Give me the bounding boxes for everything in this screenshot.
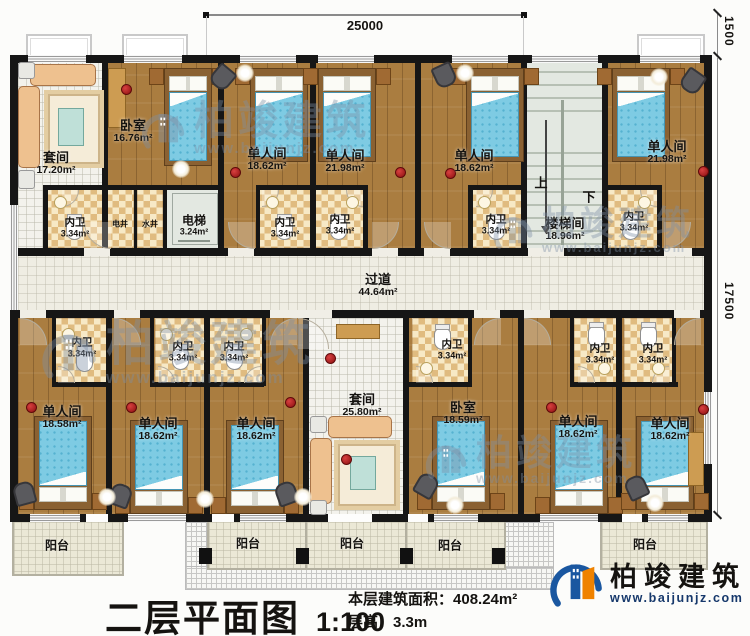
- window: [240, 55, 296, 63]
- elevator-label: 电梯3.24m²: [180, 214, 209, 237]
- stairs-up-label: 上: [534, 173, 547, 192]
- room-label-bedroom-2: 卧室18.59m²: [443, 401, 482, 427]
- washbasin: [240, 328, 253, 341]
- elevator-door: [178, 240, 210, 242]
- bed-pillows: [231, 491, 279, 506]
- room-label-single-1: 单人间18.62m²: [247, 147, 286, 173]
- balcony-label: 阳台: [340, 537, 364, 550]
- exterior-steps: [502, 522, 554, 568]
- sofa: [328, 416, 392, 438]
- floor-plan-canvas: 25000 1500 17500: [0, 0, 750, 636]
- wall: [52, 318, 56, 386]
- window: [540, 514, 598, 522]
- company-logo: 柏竣建筑 www.baijunjz.com: [548, 556, 746, 612]
- room-label-suite-1: 套间17.20m²: [36, 151, 75, 177]
- window: [318, 55, 374, 63]
- balcony-door: [622, 514, 642, 522]
- wall: [518, 318, 524, 514]
- window: [128, 514, 186, 522]
- room-label-single-9: 单人间18.62m²: [650, 417, 689, 443]
- washbasin: [478, 196, 491, 209]
- window: [704, 392, 712, 464]
- drawing-title: 二层平面图: [105, 588, 300, 636]
- bed: [432, 416, 490, 510]
- bed-pillows: [555, 491, 603, 506]
- room-label-stairwell: 楼梯间18.96m²: [545, 217, 584, 243]
- door-opening: [228, 248, 254, 256]
- stool: [26, 402, 37, 413]
- stool: [546, 402, 557, 413]
- stool: [698, 404, 709, 415]
- stool: [126, 402, 137, 413]
- dimension-line-top: [206, 14, 524, 16]
- balcony-door: [86, 514, 108, 522]
- bath-label: 内卫3.34m²: [639, 343, 668, 364]
- window: [240, 514, 286, 522]
- door-opening: [528, 248, 564, 256]
- column: [296, 548, 309, 564]
- stool: [325, 353, 336, 364]
- washbasin: [54, 196, 67, 209]
- washbasin: [420, 362, 433, 375]
- bed-pillows: [471, 76, 519, 91]
- washbasin: [638, 196, 651, 209]
- column: [492, 548, 505, 564]
- door-opening: [524, 310, 550, 318]
- room-label-single-7: 单人间18.62m²: [236, 417, 275, 443]
- ceiling-light: [98, 488, 116, 506]
- window: [30, 514, 80, 522]
- room-label-single-2: 单人间21.98m²: [325, 149, 364, 175]
- stool: [285, 397, 296, 408]
- company-logo-icon: [548, 556, 604, 612]
- washbasin: [266, 196, 279, 209]
- bed: [164, 68, 212, 166]
- bed-pillows: [323, 76, 371, 91]
- balcony-door: [328, 514, 372, 522]
- shaft-water-label: 水井: [142, 219, 158, 230]
- window: [532, 55, 598, 63]
- ceiling-light: [446, 496, 464, 514]
- room-label-single-6: 单人间18.62m²: [138, 417, 177, 443]
- sofa: [310, 438, 332, 504]
- ceiling-light: [172, 160, 190, 178]
- room-label-single-5: 单人间18.58m²: [42, 405, 81, 431]
- room-label-single-8: 单人间18.62m²: [558, 415, 597, 441]
- bath-label: 内卫3.34m²: [326, 214, 355, 235]
- ceiling-light: [196, 490, 214, 508]
- bed-mattress: [169, 92, 207, 161]
- bed-pillows: [255, 76, 303, 91]
- dim-extension: [206, 16, 207, 56]
- bath-label: 内卫3.34m²: [220, 341, 249, 362]
- ceiling-light: [294, 488, 312, 506]
- dim-offset-label: 1500: [722, 16, 736, 47]
- bath-label: 内卫3.34m²: [271, 217, 300, 238]
- bath-label: 内卫3.34m²: [482, 214, 511, 235]
- wall: [262, 318, 266, 386]
- door-opening: [270, 310, 296, 318]
- wall: [415, 62, 421, 248]
- window: [434, 514, 478, 522]
- column: [199, 548, 212, 564]
- side-table: [18, 62, 35, 79]
- corridor-label: 过道44.64m²: [358, 273, 397, 299]
- shaft-electric-label: 电井: [112, 219, 128, 230]
- room-label-single-4: 单人间21.98m²: [647, 140, 686, 166]
- bath-label: 内卫3.34m²: [169, 341, 198, 362]
- door-opening: [296, 310, 332, 318]
- wall: [570, 318, 574, 386]
- wall: [363, 185, 368, 248]
- side-table: [310, 416, 327, 433]
- dim-extension: [523, 16, 524, 56]
- stool: [121, 84, 132, 95]
- stool: [395, 167, 406, 178]
- washbasin: [160, 328, 173, 341]
- dim-tick: [521, 12, 527, 18]
- balcony-door: [212, 514, 234, 522]
- ceiling-light: [236, 64, 254, 82]
- ceiling-light: [650, 68, 668, 86]
- company-name: 柏竣建筑: [610, 563, 746, 591]
- window: [648, 514, 688, 522]
- dimension-line-right-depth: [717, 57, 718, 515]
- coffee-table: [58, 108, 84, 146]
- balcony-label: 阳台: [633, 538, 657, 551]
- wall: [256, 185, 260, 248]
- room-label-suite-2: 套间25.80m²: [342, 393, 381, 419]
- side-table: [18, 170, 35, 189]
- balcony-label: 阳台: [45, 539, 69, 552]
- door-opening: [372, 248, 398, 256]
- desk: [336, 324, 380, 339]
- company-website: www.baijunjz.com: [610, 591, 746, 605]
- window: [640, 55, 700, 63]
- floor-height-label: 层高：: [348, 614, 393, 631]
- door-opening: [20, 310, 46, 318]
- wall: [403, 318, 409, 514]
- wall: [163, 188, 167, 248]
- wall: [468, 318, 472, 386]
- wall: [134, 188, 137, 248]
- drawing-info: 本层建筑面积：408.24m² 层高：3.3m: [348, 589, 517, 634]
- window: [28, 55, 86, 63]
- wall: [672, 318, 676, 386]
- wall: [468, 185, 473, 248]
- wall: [106, 318, 112, 514]
- door-opening: [474, 310, 500, 318]
- door-opening: [674, 310, 700, 318]
- ceiling-light: [456, 64, 474, 82]
- bath-label: 内卫3.34m²: [68, 337, 97, 358]
- wall: [602, 57, 608, 248]
- dim-depth-label: 17500: [722, 282, 736, 320]
- wall: [657, 185, 662, 248]
- bed-pillows: [135, 491, 183, 506]
- window: [124, 55, 182, 63]
- dimension-line-right-offset: [717, 13, 718, 57]
- ceiling-light: [646, 494, 664, 512]
- bath-label: 内卫3.34m²: [61, 217, 90, 238]
- door-opening: [424, 248, 450, 256]
- stool: [230, 167, 241, 178]
- floor-area-label: 本层建筑面积：: [348, 591, 453, 608]
- balcony-label: 阳台: [236, 537, 260, 550]
- floor-height-value: 3.3m: [393, 614, 427, 631]
- stairs-down-label: 下: [582, 187, 595, 206]
- wall: [18, 248, 704, 256]
- bed-mattress: [437, 421, 485, 486]
- coffee-table: [350, 456, 376, 490]
- wall: [310, 62, 316, 248]
- side-table: [310, 500, 327, 515]
- wall: [204, 318, 210, 514]
- balcony-door: [408, 514, 428, 522]
- door-opening: [84, 248, 110, 256]
- stool: [341, 454, 352, 465]
- dim-width-label: 25000: [320, 18, 410, 33]
- floor-area-value: 408.24m²: [453, 591, 517, 608]
- window: [10, 205, 18, 310]
- balcony-label: 阳台: [438, 539, 462, 552]
- door-opening: [114, 310, 140, 318]
- bath-label: 内卫3.34m²: [438, 339, 467, 360]
- column: [400, 548, 413, 564]
- room-label-single-3: 单人间18.62m²: [454, 149, 493, 175]
- room-label-bedroom-1: 卧室16.76m²: [113, 119, 152, 145]
- wall: [616, 318, 622, 514]
- bed-pillows: [169, 76, 207, 91]
- desk: [688, 432, 704, 486]
- bath-label: 内卫3.34m²: [620, 211, 649, 232]
- door-opening: [664, 248, 692, 256]
- window: [452, 55, 508, 63]
- wall: [43, 185, 48, 248]
- stool: [698, 166, 709, 177]
- bath-label: 内卫3.34m²: [586, 343, 615, 364]
- wall: [218, 62, 224, 248]
- bed-pillows: [39, 487, 87, 502]
- sofa: [30, 64, 96, 86]
- wall: [150, 318, 154, 386]
- washbasin: [346, 196, 359, 209]
